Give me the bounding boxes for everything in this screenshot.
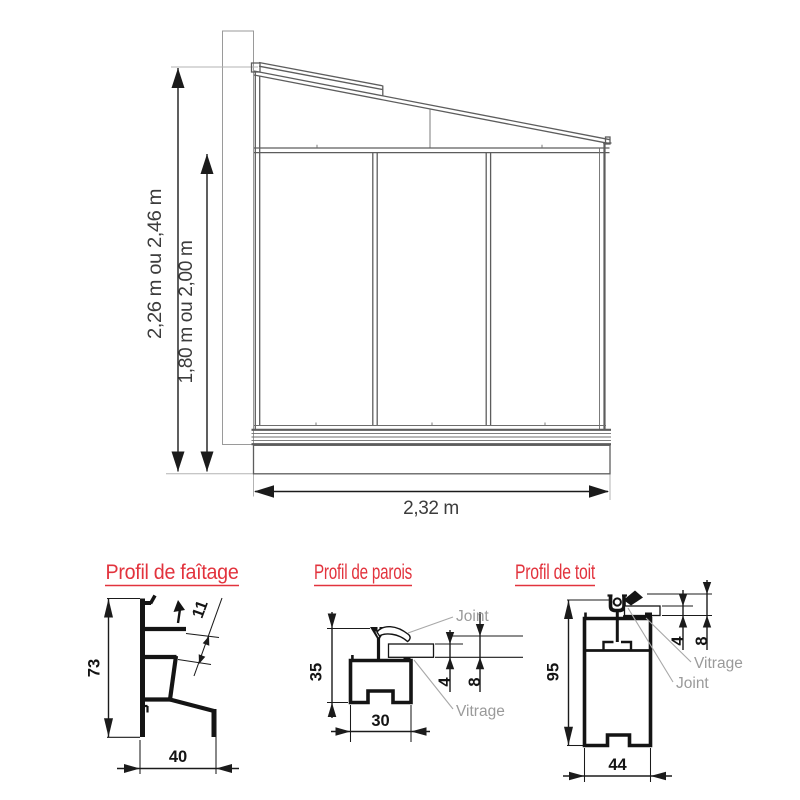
technical-drawing: 2,26 m ou 2,46 m 1,80 m ou 2,00 m 2,32 m… [0, 0, 800, 800]
greenhouse-structure [252, 63, 612, 474]
toit-title: Profil de toit [515, 561, 595, 584]
toit-width-label: 44 [608, 756, 627, 774]
toit-height-label: 95 [545, 663, 563, 681]
parois-glass [389, 644, 434, 657]
profile-parois: Profil de parois 35 [308, 561, 524, 742]
faitage-width-dim: 40 [117, 714, 239, 774]
width-dimension: 2,32 m [254, 485, 609, 519]
height-dimension-wall: 1,80 m ou 2,00 m [176, 154, 214, 472]
greenhouse-technical-drawing-page: 2,26 m ou 2,46 m 1,80 m ou 2,00 m 2,32 m… [0, 0, 800, 800]
faitage-glazing-label: 11 [189, 598, 212, 621]
parois-width-label: 30 [371, 712, 389, 730]
parois-glass-label: 4 [436, 677, 454, 687]
parois-glass-joint-label: 8 [466, 677, 484, 686]
toit-profile-shape [585, 591, 661, 746]
parois-callouts: Joint Vitrage [408, 608, 505, 720]
faitage-direction-arrow-icon [174, 600, 186, 623]
width-label: 2,32 m [403, 498, 459, 519]
parois-joint-seal [377, 627, 410, 642]
profile-toit: Profil de toit [515, 561, 743, 782]
elevation-view: 2,26 m ou 2,46 m 1,80 m ou 2,00 m 2,32 m [145, 31, 612, 519]
toit-joint-label: Joint [676, 675, 709, 692]
toit-glass-label: 4 [669, 636, 687, 646]
toit-width-dim: 44 [563, 748, 672, 782]
sill-profile [252, 430, 612, 444]
profile-faitage: Profil de faîtage 73 [86, 561, 240, 774]
parois-width-dim: 30 [331, 705, 430, 742]
toit-joint-seal [624, 591, 644, 606]
base-foundation [254, 445, 611, 474]
eaves-beam [254, 145, 610, 153]
parois-joint-label: Joint [456, 608, 489, 625]
height-wall-label: 1,80 m ou 2,00 m [176, 241, 197, 384]
right-post [600, 144, 605, 430]
toit-vitrage-label: Vitrage [694, 655, 743, 672]
faitage-height-label: 73 [86, 659, 104, 677]
glazing-mullions [373, 153, 491, 426]
roof-slope [252, 63, 612, 148]
parois-title: Profil de parois [314, 561, 412, 584]
faitage-width-label: 40 [169, 748, 187, 766]
height-total-label: 2,26 m ou 2,46 m [145, 189, 166, 339]
back-wall [223, 31, 254, 445]
glazing-bottom-edge [254, 423, 606, 426]
faitage-title: Profil de faîtage [106, 561, 239, 584]
parois-vitrage-label: Vitrage [456, 703, 505, 720]
parois-height-label: 35 [308, 663, 326, 681]
left-post [255, 72, 259, 430]
faitage-height-dim: 73 [86, 599, 141, 738]
parois-profile-shape [351, 625, 434, 703]
toit-glass-joint-label: 8 [693, 636, 711, 645]
